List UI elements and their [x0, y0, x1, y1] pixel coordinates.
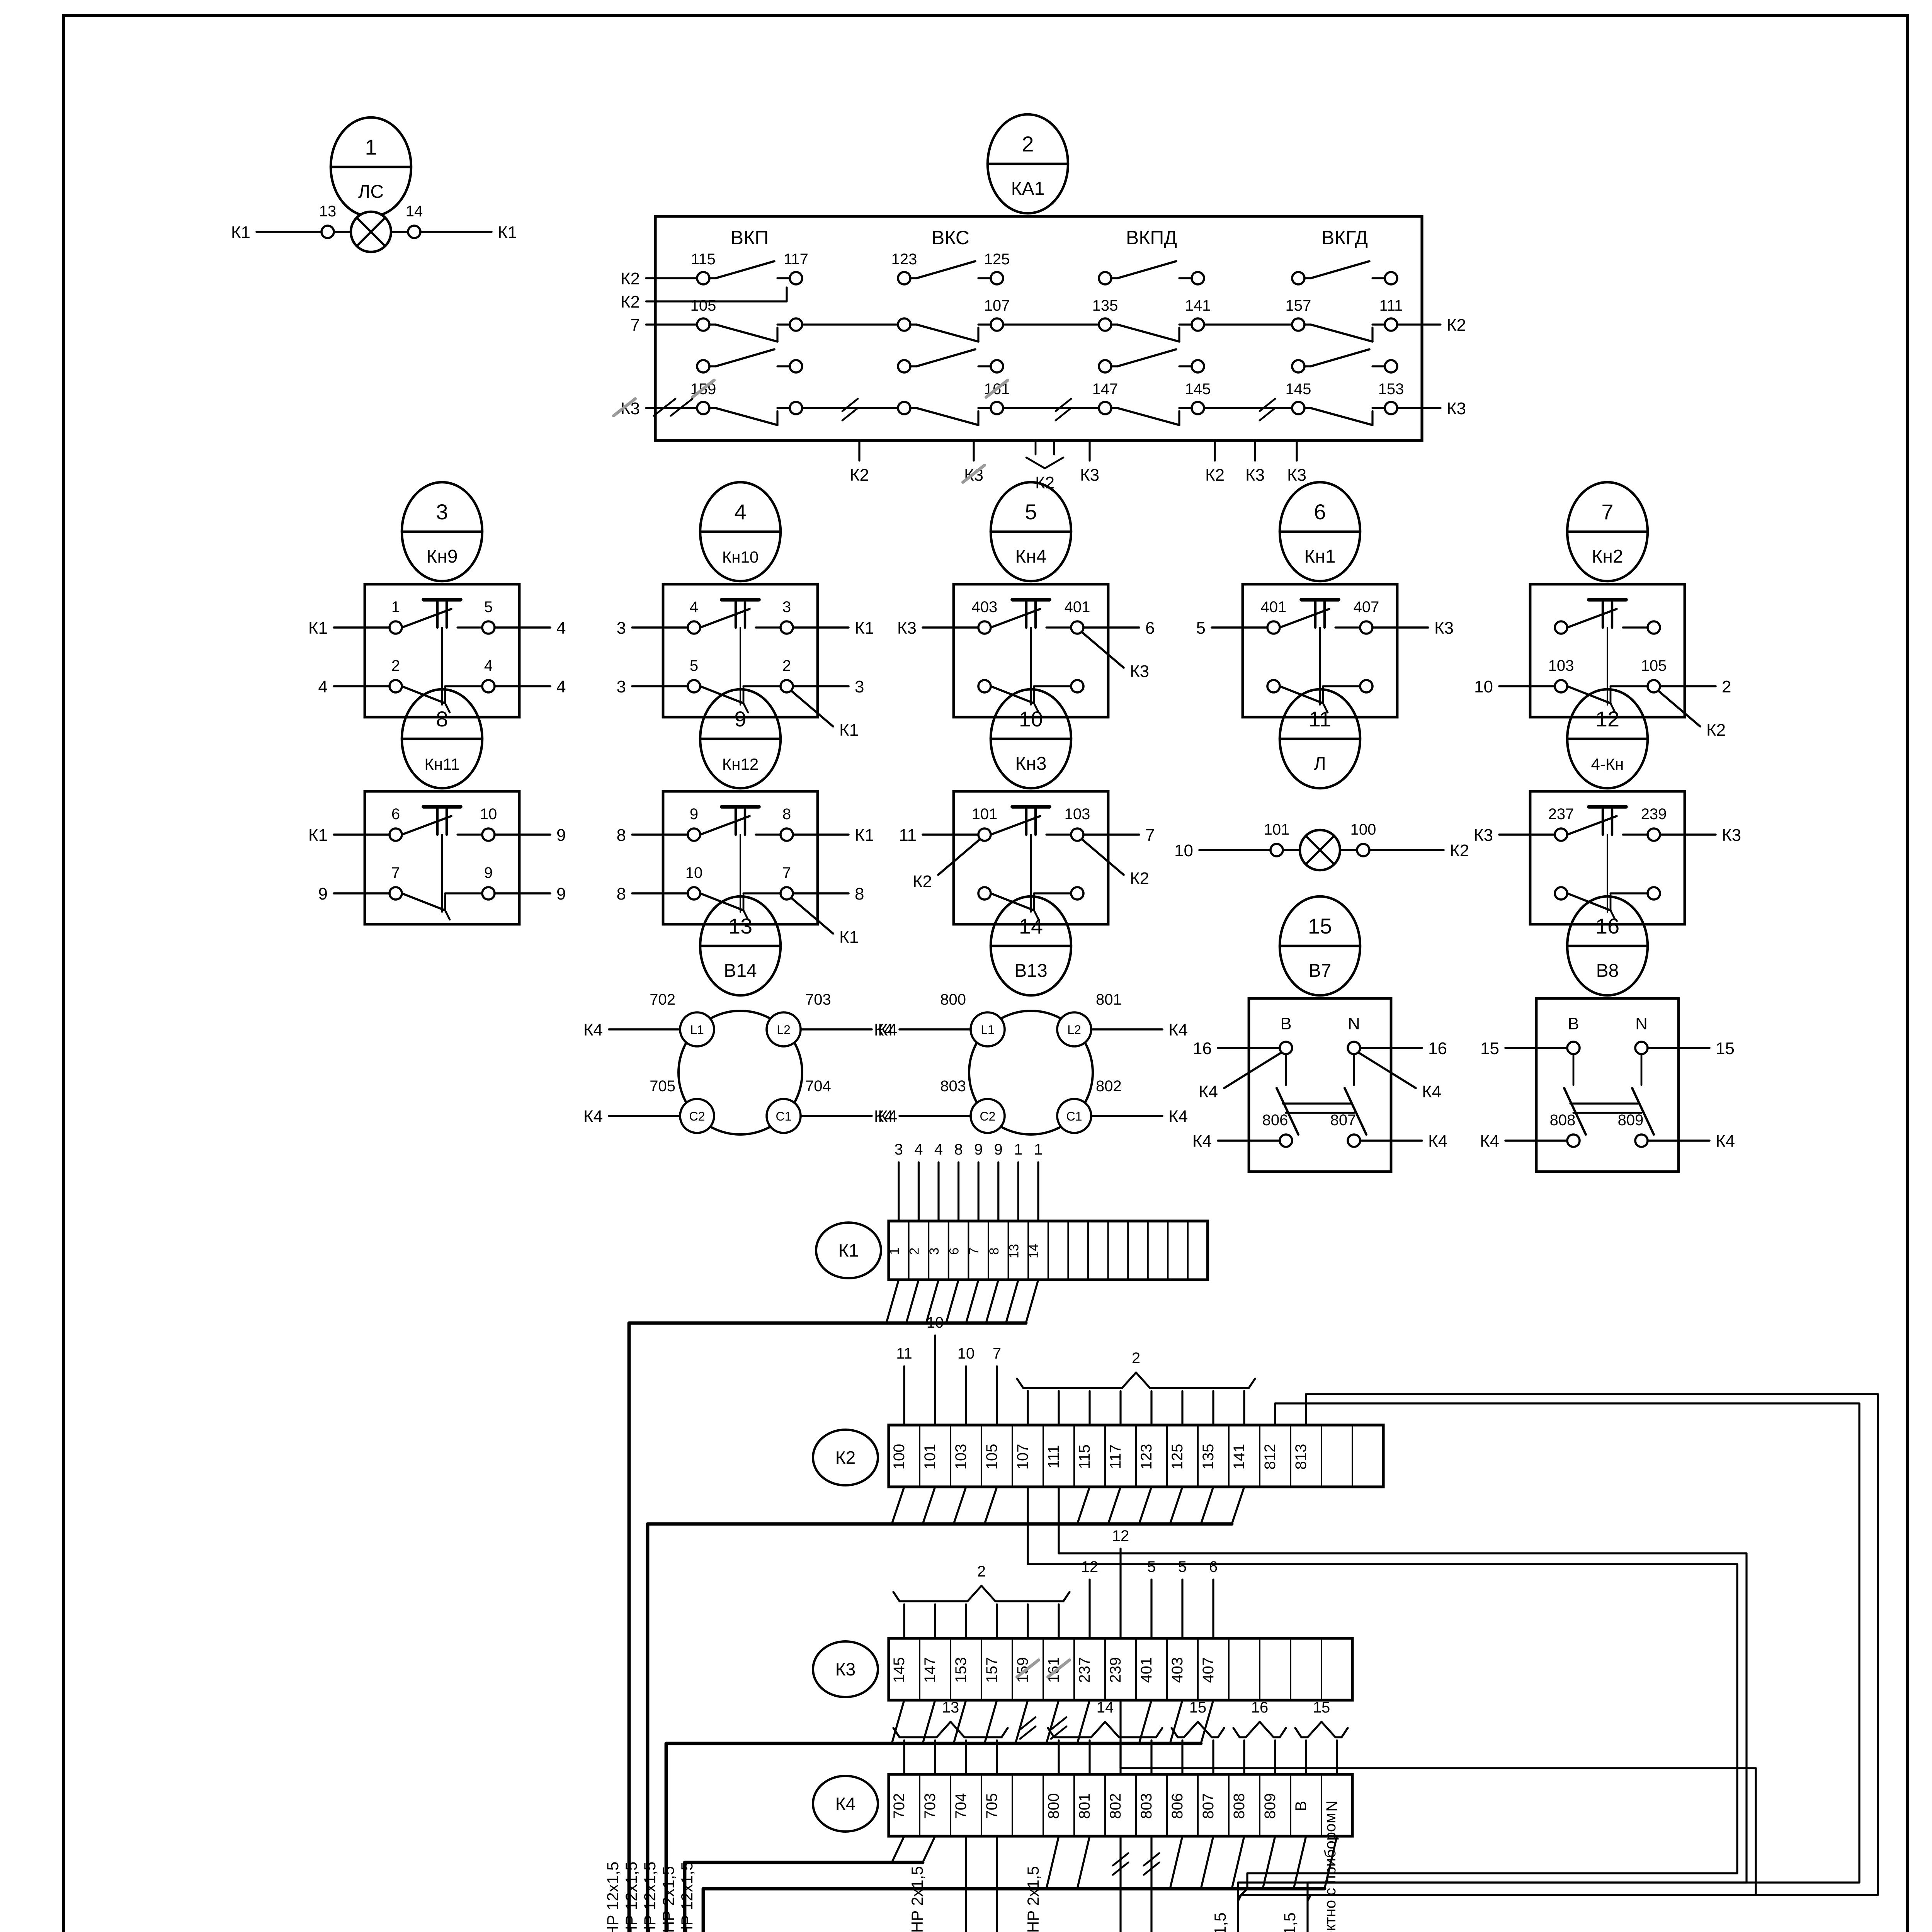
- svg-text:3: 3: [927, 1248, 942, 1255]
- svg-text:8: 8: [436, 707, 448, 731]
- svg-text:К2: К2: [1447, 316, 1466, 335]
- svg-text:В: В: [1280, 1014, 1291, 1033]
- svg-text:9: 9: [318, 884, 328, 903]
- svg-text:16: 16: [1428, 1039, 1447, 1058]
- svg-text:401: 401: [1138, 1657, 1155, 1683]
- component-14-В13: 14В13L1К4800L2К4801C2К4803C1К4802: [874, 896, 1188, 1134]
- svg-text:8: 8: [617, 884, 626, 903]
- svg-text:4-Кн: 4-Кн: [1591, 755, 1624, 773]
- svg-text:16: 16: [1595, 914, 1619, 938]
- svg-text:702: 702: [650, 991, 675, 1008]
- svg-text:125: 125: [1169, 1444, 1186, 1470]
- svg-text:КНР 12х1,5: КНР 12х1,5: [622, 1862, 640, 1932]
- svg-text:401: 401: [1065, 599, 1090, 616]
- svg-text:Кн3: Кн3: [1015, 753, 1046, 774]
- svg-text:145: 145: [891, 1657, 908, 1683]
- svg-text:К4: К4: [583, 1020, 603, 1039]
- wire-routes: [1028, 1394, 1878, 1932]
- svg-text:157: 157: [1286, 297, 1311, 314]
- svg-text:808: 808: [1550, 1112, 1576, 1129]
- svg-text:10: 10: [1174, 841, 1193, 860]
- svg-text:К2: К2: [1450, 841, 1469, 860]
- svg-text:117: 117: [1107, 1444, 1124, 1469]
- svg-text:комплектно с прибором: комплектно с прибором: [1322, 1813, 1339, 1932]
- svg-text:ВКГД: ВКГД: [1321, 227, 1368, 248]
- svg-text:4: 4: [734, 500, 746, 524]
- svg-text:15: 15: [1308, 914, 1332, 938]
- svg-text:1: 1: [365, 135, 377, 159]
- svg-text:7: 7: [1145, 826, 1155, 845]
- svg-text:1: 1: [887, 1248, 902, 1255]
- svg-text:В7: В7: [1309, 961, 1332, 981]
- svg-text:5: 5: [1178, 1558, 1187, 1575]
- svg-text:16: 16: [1251, 1699, 1269, 1716]
- svg-text:145: 145: [1286, 381, 1311, 398]
- svg-text:704: 704: [952, 1793, 969, 1819]
- svg-text:802: 802: [1096, 1078, 1122, 1095]
- svg-text:КА1: КА1: [1011, 179, 1045, 199]
- svg-text:Л: Л: [1314, 753, 1326, 774]
- svg-text:237: 237: [1548, 806, 1574, 823]
- svg-text:802: 802: [1107, 1793, 1124, 1819]
- svg-text:N: N: [1348, 1014, 1360, 1033]
- svg-text:К1: К1: [838, 1240, 859, 1260]
- svg-text:К3: К3: [1245, 466, 1265, 485]
- svg-text:L1: L1: [690, 1023, 704, 1037]
- svg-text:3: 3: [895, 1141, 903, 1158]
- svg-text:C1: C1: [776, 1109, 792, 1123]
- svg-text:107: 107: [984, 297, 1010, 314]
- svg-text:L1: L1: [981, 1023, 995, 1037]
- svg-text:ЛС: ЛС: [358, 182, 384, 202]
- svg-text:100: 100: [1350, 821, 1376, 838]
- component-10-Кн3: 10Кн3101103117К2К2: [899, 689, 1155, 924]
- svg-text:C2: C2: [980, 1109, 996, 1123]
- svg-text:153: 153: [952, 1657, 969, 1683]
- svg-text:К3: К3: [835, 1659, 855, 1679]
- svg-text:6: 6: [1314, 500, 1326, 524]
- svg-text:703: 703: [922, 1793, 939, 1819]
- svg-text:КНР 3х1,5: КНР 3х1,5: [1211, 1912, 1229, 1932]
- svg-text:812: 812: [1262, 1444, 1279, 1470]
- svg-text:Кн9: Кн9: [426, 546, 457, 567]
- svg-text:C1: C1: [1066, 1109, 1082, 1123]
- svg-text:К4: К4: [1480, 1132, 1499, 1151]
- svg-text:159: 159: [1014, 1657, 1031, 1683]
- svg-text:ВКС: ВКС: [932, 227, 969, 248]
- component-4-Кн10: 4Кн10433К15233К1: [617, 482, 874, 740]
- svg-text:401: 401: [1261, 599, 1287, 616]
- svg-text:7: 7: [631, 316, 640, 335]
- svg-text:12: 12: [1081, 1558, 1099, 1575]
- svg-text:5: 5: [1025, 500, 1037, 524]
- svg-text:КНР 12х1,5: КНР 12х1,5: [641, 1862, 659, 1932]
- svg-text:705: 705: [983, 1793, 1000, 1819]
- svg-text:К4: К4: [874, 1020, 893, 1039]
- svg-text:4: 4: [556, 677, 566, 696]
- svg-text:2: 2: [1722, 677, 1731, 696]
- svg-text:10: 10: [927, 1314, 944, 1331]
- svg-text:К4: К4: [1428, 1132, 1447, 1151]
- svg-text:806: 806: [1262, 1112, 1288, 1129]
- svg-text:10: 10: [1019, 707, 1043, 731]
- svg-text:К1: К1: [231, 223, 250, 242]
- svg-text:2: 2: [1132, 1350, 1140, 1367]
- svg-text:807: 807: [1200, 1793, 1217, 1819]
- svg-text:803: 803: [1138, 1793, 1155, 1819]
- svg-text:К4: К4: [1199, 1082, 1218, 1101]
- svg-text:10: 10: [1474, 677, 1493, 696]
- svg-text:10: 10: [685, 864, 703, 881]
- svg-text:702: 702: [891, 1793, 908, 1819]
- component-15-В7: 15В7ВN1616К4К4806807К4К4: [1192, 896, 1447, 1172]
- svg-text:6: 6: [947, 1248, 962, 1255]
- svg-text:16: 16: [1193, 1039, 1212, 1058]
- svg-text:103: 103: [952, 1444, 969, 1470]
- svg-text:5: 5: [690, 657, 698, 674]
- svg-text:К4: К4: [1168, 1107, 1188, 1126]
- svg-text:7: 7: [391, 864, 400, 881]
- svg-text:6: 6: [391, 806, 400, 823]
- terminal-К2: К210010110310510711111511712312513514181…: [648, 1314, 1383, 1932]
- svg-text:К3: К3: [1447, 399, 1466, 418]
- svg-text:В: В: [1293, 1801, 1310, 1811]
- svg-text:101: 101: [972, 806, 998, 823]
- svg-text:15: 15: [1189, 1699, 1207, 1716]
- schematic-canvas: 1ЛСК1К1131411Л10К21011002КА1ВКП115117105…: [0, 0, 1932, 1932]
- component-6-Кн1: 6Кн14014075К3: [1196, 482, 1454, 717]
- svg-text:В8: В8: [1596, 961, 1619, 981]
- svg-text:КНР 2х1,5: КНР 2х1,5: [1281, 1912, 1299, 1932]
- svg-text:9: 9: [734, 707, 746, 731]
- svg-text:147: 147: [922, 1657, 939, 1683]
- svg-text:9: 9: [556, 826, 566, 845]
- svg-text:101: 101: [922, 1444, 939, 1470]
- svg-text:К2: К2: [1706, 721, 1726, 740]
- svg-text:14: 14: [1097, 1699, 1114, 1716]
- svg-text:10: 10: [957, 1345, 975, 1362]
- svg-text:239: 239: [1641, 806, 1667, 823]
- svg-text:13: 13: [319, 203, 337, 220]
- svg-text:К1: К1: [839, 928, 859, 947]
- svg-text:237: 237: [1076, 1657, 1093, 1683]
- svg-text:Кн12: Кн12: [722, 755, 759, 773]
- svg-text:К4: К4: [583, 1107, 603, 1126]
- svg-text:N: N: [1323, 1801, 1340, 1812]
- svg-text:800: 800: [1045, 1793, 1062, 1819]
- svg-text:103: 103: [1065, 806, 1090, 823]
- svg-text:КНР 2х1,5: КНР 2х1,5: [908, 1866, 926, 1932]
- svg-text:4: 4: [690, 599, 698, 616]
- svg-text:К4: К4: [1192, 1132, 1212, 1151]
- svg-text:806: 806: [1169, 1793, 1186, 1819]
- svg-text:Кн1: Кн1: [1304, 546, 1335, 567]
- svg-text:К3: К3: [1080, 466, 1099, 485]
- svg-text:К3: К3: [1434, 619, 1454, 638]
- svg-text:115: 115: [1076, 1444, 1093, 1469]
- svg-text:14: 14: [406, 203, 423, 220]
- svg-text:К3: К3: [1722, 826, 1741, 845]
- svg-text:105: 105: [690, 297, 716, 314]
- component-5-Кн4: 5Кн4403401К36К3: [897, 482, 1155, 717]
- svg-text:809: 809: [1618, 1112, 1644, 1129]
- svg-text:803: 803: [940, 1078, 966, 1095]
- svg-text:103: 103: [1548, 657, 1574, 674]
- svg-text:15: 15: [1480, 1039, 1499, 1058]
- svg-text:ВКПД: ВКПД: [1126, 227, 1177, 248]
- svg-text:КНР 2х1,5: КНР 2х1,5: [659, 1866, 677, 1932]
- svg-text:161: 161: [1045, 1657, 1062, 1683]
- svg-text:К1: К1: [498, 223, 517, 242]
- svg-text:8: 8: [617, 826, 626, 845]
- svg-text:403: 403: [1169, 1657, 1186, 1683]
- svg-text:7: 7: [782, 864, 791, 881]
- svg-text:6: 6: [1209, 1558, 1218, 1575]
- svg-text:117: 117: [784, 251, 808, 268]
- svg-text:1: 1: [1034, 1141, 1043, 1158]
- svg-text:15: 15: [1313, 1699, 1330, 1716]
- svg-text:К2: К2: [850, 466, 869, 485]
- svg-text:3: 3: [855, 677, 864, 696]
- svg-text:135: 135: [1200, 1444, 1217, 1470]
- svg-text:КНР 12х1,5: КНР 12х1,5: [604, 1862, 622, 1932]
- svg-text:11: 11: [896, 1345, 912, 1362]
- svg-text:123: 123: [1138, 1444, 1155, 1470]
- svg-text:Кн10: Кн10: [722, 548, 759, 566]
- svg-text:101: 101: [1264, 821, 1290, 838]
- svg-text:К4: К4: [1422, 1082, 1441, 1101]
- svg-text:9: 9: [484, 864, 493, 881]
- svg-text:Кн4: Кн4: [1015, 546, 1046, 567]
- svg-text:9: 9: [994, 1141, 1003, 1158]
- svg-text:14: 14: [1019, 914, 1043, 938]
- svg-text:К4: К4: [835, 1794, 855, 1814]
- svg-text:111: 111: [1045, 1445, 1062, 1469]
- svg-text:13: 13: [942, 1699, 959, 1716]
- svg-text:147: 147: [1092, 381, 1118, 398]
- svg-text:800: 800: [940, 991, 966, 1008]
- svg-text:К1: К1: [855, 826, 874, 845]
- svg-text:К4: К4: [874, 1107, 893, 1126]
- svg-text:ВКП: ВКП: [731, 227, 769, 248]
- svg-text:К3: К3: [1474, 826, 1493, 845]
- svg-text:7: 7: [1601, 500, 1613, 524]
- svg-text:6: 6: [1145, 619, 1155, 638]
- svg-text:13: 13: [728, 914, 752, 938]
- svg-text:703: 703: [805, 991, 831, 1008]
- svg-text:N: N: [1635, 1014, 1648, 1033]
- svg-text:2: 2: [977, 1563, 986, 1580]
- svg-text:К2: К2: [621, 269, 640, 288]
- component-8-Кн11: 8Кн11610К197999: [308, 689, 566, 924]
- svg-text:809: 809: [1262, 1793, 1279, 1819]
- svg-text:К2: К2: [835, 1447, 855, 1468]
- svg-text:В13: В13: [1014, 961, 1047, 981]
- svg-text:К1: К1: [308, 619, 328, 638]
- svg-text:К1: К1: [839, 721, 859, 740]
- svg-text:К3: К3: [1130, 662, 1149, 681]
- svg-text:К1: К1: [855, 619, 874, 638]
- svg-text:705: 705: [650, 1078, 675, 1095]
- svg-text:1: 1: [1014, 1141, 1022, 1158]
- svg-text:111: 111: [1379, 297, 1403, 314]
- svg-text:В: В: [1568, 1014, 1579, 1033]
- component-7-Кн2: 7Кн2103105102К2: [1474, 482, 1731, 740]
- svg-text:135: 135: [1092, 297, 1118, 314]
- svg-text:8: 8: [855, 884, 864, 903]
- svg-text:К4: К4: [1168, 1020, 1188, 1039]
- svg-text:9: 9: [974, 1141, 983, 1158]
- svg-text:5: 5: [484, 599, 493, 616]
- svg-text:107: 107: [1014, 1444, 1031, 1470]
- svg-text:105: 105: [983, 1444, 1000, 1470]
- svg-text:141: 141: [1231, 1444, 1248, 1470]
- svg-text:3: 3: [617, 677, 626, 696]
- svg-text:2: 2: [782, 657, 791, 674]
- svg-text:11: 11: [899, 826, 917, 845]
- svg-text:807: 807: [1330, 1112, 1356, 1129]
- svg-text:100: 100: [891, 1444, 908, 1470]
- svg-text:КНР 12х1,5: КНР 12х1,5: [678, 1862, 696, 1932]
- svg-text:3: 3: [782, 599, 791, 616]
- svg-text:К3: К3: [897, 619, 917, 638]
- svg-text:4: 4: [484, 657, 493, 674]
- svg-text:К3: К3: [1287, 466, 1306, 485]
- svg-text:8: 8: [954, 1141, 963, 1158]
- svg-text:801: 801: [1076, 1793, 1093, 1819]
- drawing-sheet: 1ЛСК1К1131411Л10К21011002КА1ВКП115117105…: [0, 0, 1932, 1932]
- svg-text:2: 2: [1022, 132, 1034, 156]
- svg-text:115: 115: [691, 251, 716, 268]
- svg-text:4: 4: [318, 677, 328, 696]
- svg-text:407: 407: [1200, 1657, 1217, 1683]
- svg-text:4: 4: [934, 1141, 943, 1158]
- svg-text:145: 145: [1185, 381, 1211, 398]
- svg-text:К1: К1: [308, 826, 328, 845]
- svg-text:К2: К2: [621, 293, 640, 311]
- component-1-ЛС: 1ЛСК1К11314: [231, 117, 517, 252]
- svg-text:808: 808: [1231, 1793, 1248, 1819]
- svg-text:813: 813: [1293, 1444, 1310, 1470]
- svg-text:3: 3: [617, 619, 626, 638]
- component-9-Кн12: 9Кн12988К110788К1: [617, 689, 874, 947]
- svg-text:239: 239: [1107, 1657, 1124, 1683]
- svg-text:801: 801: [1096, 991, 1122, 1008]
- svg-text:К4: К4: [1716, 1132, 1735, 1151]
- component-3-Кн9: 3Кн915К142444: [308, 482, 566, 717]
- svg-text:13: 13: [1007, 1244, 1021, 1259]
- svg-text:1: 1: [391, 599, 400, 616]
- svg-text:12: 12: [1112, 1527, 1129, 1544]
- svg-text:141: 141: [1185, 297, 1211, 314]
- svg-text:15: 15: [1716, 1039, 1735, 1058]
- svg-text:403: 403: [972, 599, 998, 616]
- svg-text:2: 2: [907, 1248, 922, 1255]
- svg-text:Кн11: Кн11: [424, 755, 459, 773]
- svg-text:4: 4: [914, 1141, 923, 1158]
- svg-text:7: 7: [993, 1345, 1001, 1362]
- svg-text:К2: К2: [1205, 466, 1225, 485]
- svg-text:153: 153: [1378, 381, 1404, 398]
- svg-text:В14: В14: [724, 961, 757, 981]
- component-16-В8: 16В8ВN1515808809К4К4: [1480, 896, 1735, 1172]
- svg-text:12: 12: [1595, 707, 1619, 731]
- svg-text:9: 9: [690, 806, 698, 823]
- svg-text:C2: C2: [689, 1109, 705, 1123]
- svg-text:407: 407: [1354, 599, 1379, 616]
- svg-text:704: 704: [805, 1078, 831, 1095]
- svg-text:5: 5: [1196, 619, 1206, 638]
- svg-text:К2: К2: [1130, 869, 1149, 888]
- svg-text:157: 157: [983, 1657, 1000, 1683]
- component-2-KA1: 2КА1ВКП115117105159ВКС123125107161ВКПД13…: [614, 114, 1466, 492]
- svg-text:105: 105: [1641, 657, 1667, 674]
- svg-text:10: 10: [480, 806, 497, 823]
- svg-text:Кн2: Кн2: [1592, 546, 1623, 567]
- terminal-К3: К314514715315715916123723940140340712125…: [666, 1527, 1352, 1932]
- svg-text:14: 14: [1027, 1244, 1041, 1259]
- svg-text:123: 123: [891, 251, 917, 268]
- svg-text:К2: К2: [913, 872, 932, 891]
- svg-text:125: 125: [984, 251, 1010, 268]
- svg-text:L2: L2: [777, 1023, 791, 1037]
- component-12-4-Кн: 124-Кн237239К3К3: [1474, 689, 1741, 924]
- svg-text:КНР 2х1,5: КНР 2х1,5: [1024, 1866, 1042, 1932]
- svg-text:2: 2: [391, 657, 400, 674]
- svg-text:8: 8: [987, 1248, 1002, 1255]
- svg-text:5: 5: [1147, 1558, 1156, 1575]
- svg-text:L2: L2: [1067, 1023, 1081, 1037]
- svg-text:7: 7: [967, 1248, 981, 1255]
- svg-text:9: 9: [556, 884, 566, 903]
- svg-text:3: 3: [436, 500, 448, 524]
- svg-text:4: 4: [556, 619, 566, 638]
- svg-text:8: 8: [782, 806, 791, 823]
- svg-text:11: 11: [1309, 707, 1331, 731]
